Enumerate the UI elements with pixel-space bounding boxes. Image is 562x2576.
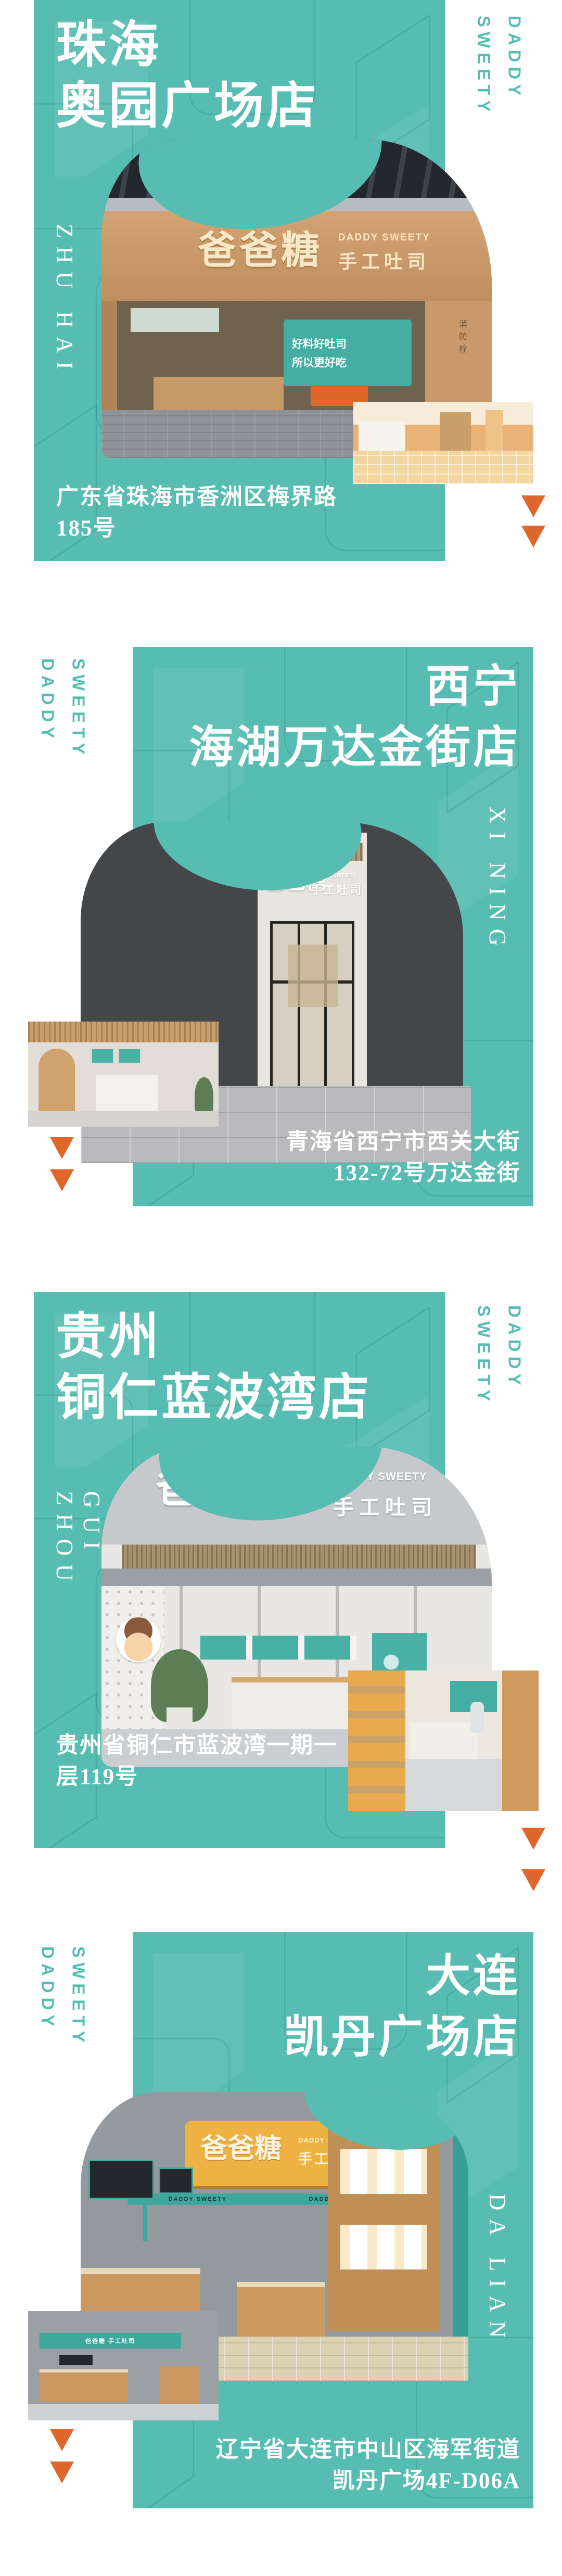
shop-interior: 好料好吐司 所以更好吃 — [117, 301, 425, 410]
brand-vertical-wordmark: DADDY SWEETY — [32, 1946, 93, 2066]
interior-banner-line1: 好料好吐司 — [292, 336, 412, 351]
inset-arch-shelf — [39, 1049, 75, 1111]
store-card-xining: 西宁 海湖万达金街店 DADDY SWEETY XI NING 爸爸糖 DADD… — [0, 645, 562, 1291]
storefront-sign-sub: 手工吐司 — [311, 881, 363, 898]
inset-menu-screen — [91, 1048, 114, 1064]
storefront-sign-cn: 爸爸糖 — [198, 231, 323, 270]
store-card-zhuhai: 珠海 奥园广场店 DADDY SWEETY ZHU HAI 爸爸糖 DADDY … — [0, 0, 562, 645]
inset-counter — [96, 1075, 158, 1111]
brand-vertical-wordmark: DADDY SWEETY — [468, 16, 529, 135]
inset-menu-screens — [59, 2355, 93, 2365]
address-line1: 贵州省铜仁市蓝波湾一期一 — [56, 1730, 337, 1762]
lit-shelf — [340, 2225, 427, 2269]
inset-canopy-sign: 爸爸糖 手工吐司 — [40, 2333, 181, 2349]
store-title-city: 西宁 — [156, 659, 520, 714]
store-title-name: 凯丹广场店 — [156, 2010, 520, 2064]
inset-bread-shelf — [348, 1670, 405, 1811]
down-triangle-icon — [50, 2429, 74, 2451]
interior-inset-photo — [28, 1022, 219, 1127]
store-card-dalian: 大连 凯丹广场店 DADDY SWEETY DA LIAN 爸爸糖 DADDY … — [0, 1931, 562, 2576]
ribbed-cornice — [122, 1545, 476, 1568]
inset-menu-screen — [118, 1048, 142, 1064]
inset-wood-ceiling — [28, 1022, 219, 1042]
poster-page: 珠海 奥园广场店 DADDY SWEETY ZHU HAI 爸爸糖 DADDY … — [0, 0, 562, 2576]
store-title: 西宁 海湖万达金街店 — [156, 659, 520, 775]
interior-inset-photo — [353, 402, 533, 484]
city-pinyin-vertical: GUI ZHOU — [51, 1491, 105, 1657]
store-title: 贵州 铜仁蓝波湾店 — [56, 1306, 372, 1428]
inset-floor — [28, 2404, 219, 2420]
side-wall-right: 消防栓 — [425, 301, 492, 410]
beam-leg — [143, 2205, 147, 2241]
address-line1: 辽宁省大连市中山区海军街道 — [156, 2434, 520, 2466]
inset-floor — [353, 451, 533, 484]
storefront-sign-sub: 手工吐司 — [338, 247, 430, 274]
storefront-sign-cn: 爸爸糖 — [200, 2135, 282, 2162]
address-line2: 185号 — [56, 513, 337, 544]
store-title-city: 珠海 — [56, 15, 319, 75]
lit-shelf — [340, 2149, 427, 2194]
facade-sign-band: 爸爸糖 DADDY SWEETY 手工吐司 — [101, 211, 492, 301]
store-title-name: 奥园广场店 — [56, 75, 319, 136]
fire-hydrant-label: 消防栓 — [455, 320, 468, 357]
store-title-name: 海湖万达金街店 — [156, 720, 520, 775]
inset-plant — [195, 1077, 213, 1114]
address-line1: 青海省西宁市西关大街 — [156, 1127, 520, 1158]
down-triangle-icon — [521, 495, 545, 517]
inset-display-cart — [160, 2366, 199, 2404]
store-title: 大连 凯丹广场店 — [156, 1949, 520, 2064]
soffit — [101, 1568, 492, 1586]
down-triangle-icon — [50, 1137, 74, 1159]
plant-pot — [167, 1707, 193, 1729]
interior-glow — [288, 945, 338, 1007]
address-line2: 132-72号万达金街 — [156, 1158, 520, 1189]
down-triangle-icon — [521, 1869, 545, 1891]
menu-screens — [131, 308, 219, 332]
down-triangle-icon — [50, 2462, 74, 2483]
inset-floor — [28, 1111, 219, 1127]
store-address: 青海省西宁市西关大街 132-72号万达金街 — [156, 1127, 520, 1189]
city-pinyin-vertical: XI NING — [484, 807, 511, 963]
boy-mascot-logo — [116, 1617, 161, 1662]
address-line2: 凯丹广场4F-D06A — [156, 2466, 520, 2497]
side-wall-left — [101, 301, 117, 410]
interior-banner-line2: 所以更好吃 — [292, 354, 412, 370]
menu-screens — [200, 1636, 356, 1660]
storefront-sign-sub: 手工吐司 — [333, 1490, 437, 1521]
address-line1: 广东省珠海市香洲区梅界路 — [56, 482, 337, 513]
city-pinyin-vertical: DA LIAN — [484, 2194, 511, 2350]
inset-wood-wall — [502, 1670, 539, 1811]
inset-floor — [405, 1759, 502, 1811]
brand-vertical-wordmark: DADDY SWEETY — [468, 1305, 529, 1425]
store-address: 贵州省铜仁市蓝波湾一期一 层119号 — [56, 1730, 337, 1793]
store-address: 辽宁省大连市中山区海军街道 凯丹广场4F-D06A — [156, 2434, 520, 2497]
store-address: 广东省珠海市香洲区梅界路 185号 — [56, 482, 337, 544]
wood-counter — [154, 377, 284, 410]
inset-cabinet — [359, 422, 405, 455]
brand-vertical-wordmark: DADDY SWEETY — [32, 658, 93, 778]
store-title: 珠海 奥园广场店 — [56, 15, 319, 136]
storefront-sign-en: DADDY SWEETY — [338, 232, 430, 244]
inset-counter — [40, 2369, 128, 2402]
store-title-city: 大连 — [156, 1949, 520, 2004]
interior-inset-photo — [348, 1670, 539, 1811]
beam-brand-text: DADDY SWEETY — [169, 2196, 227, 2202]
city-pinyin-vertical: ZHU HAI — [51, 224, 78, 380]
down-triangle-icon — [521, 526, 545, 547]
inset-counter — [411, 1723, 478, 1759]
island-counter — [237, 2282, 325, 2342]
down-triangle-icon — [521, 1828, 545, 1850]
kiosk-inset-photo: 爸爸糖 手工吐司 — [28, 2311, 219, 2420]
store-title-name: 铜仁蓝波湾店 — [56, 1367, 372, 1428]
store-title-city: 贵州 — [56, 1306, 372, 1367]
interior-banner: 好料好吐司 所以更好吃 — [284, 320, 412, 386]
inset-person — [470, 1702, 484, 1733]
display-counter — [232, 1677, 367, 1729]
address-line2: 层119号 — [56, 1762, 337, 1793]
store-card-guizhou: 贵州 铜仁蓝波湾店 DADDY SWEETY GUI ZHOU 爸爸糖 DADD… — [0, 1291, 562, 1931]
down-triangle-icon — [50, 1169, 74, 1191]
glass-door — [270, 921, 354, 1106]
menu-screen — [88, 2160, 154, 2199]
menu-screen — [159, 2167, 193, 2194]
